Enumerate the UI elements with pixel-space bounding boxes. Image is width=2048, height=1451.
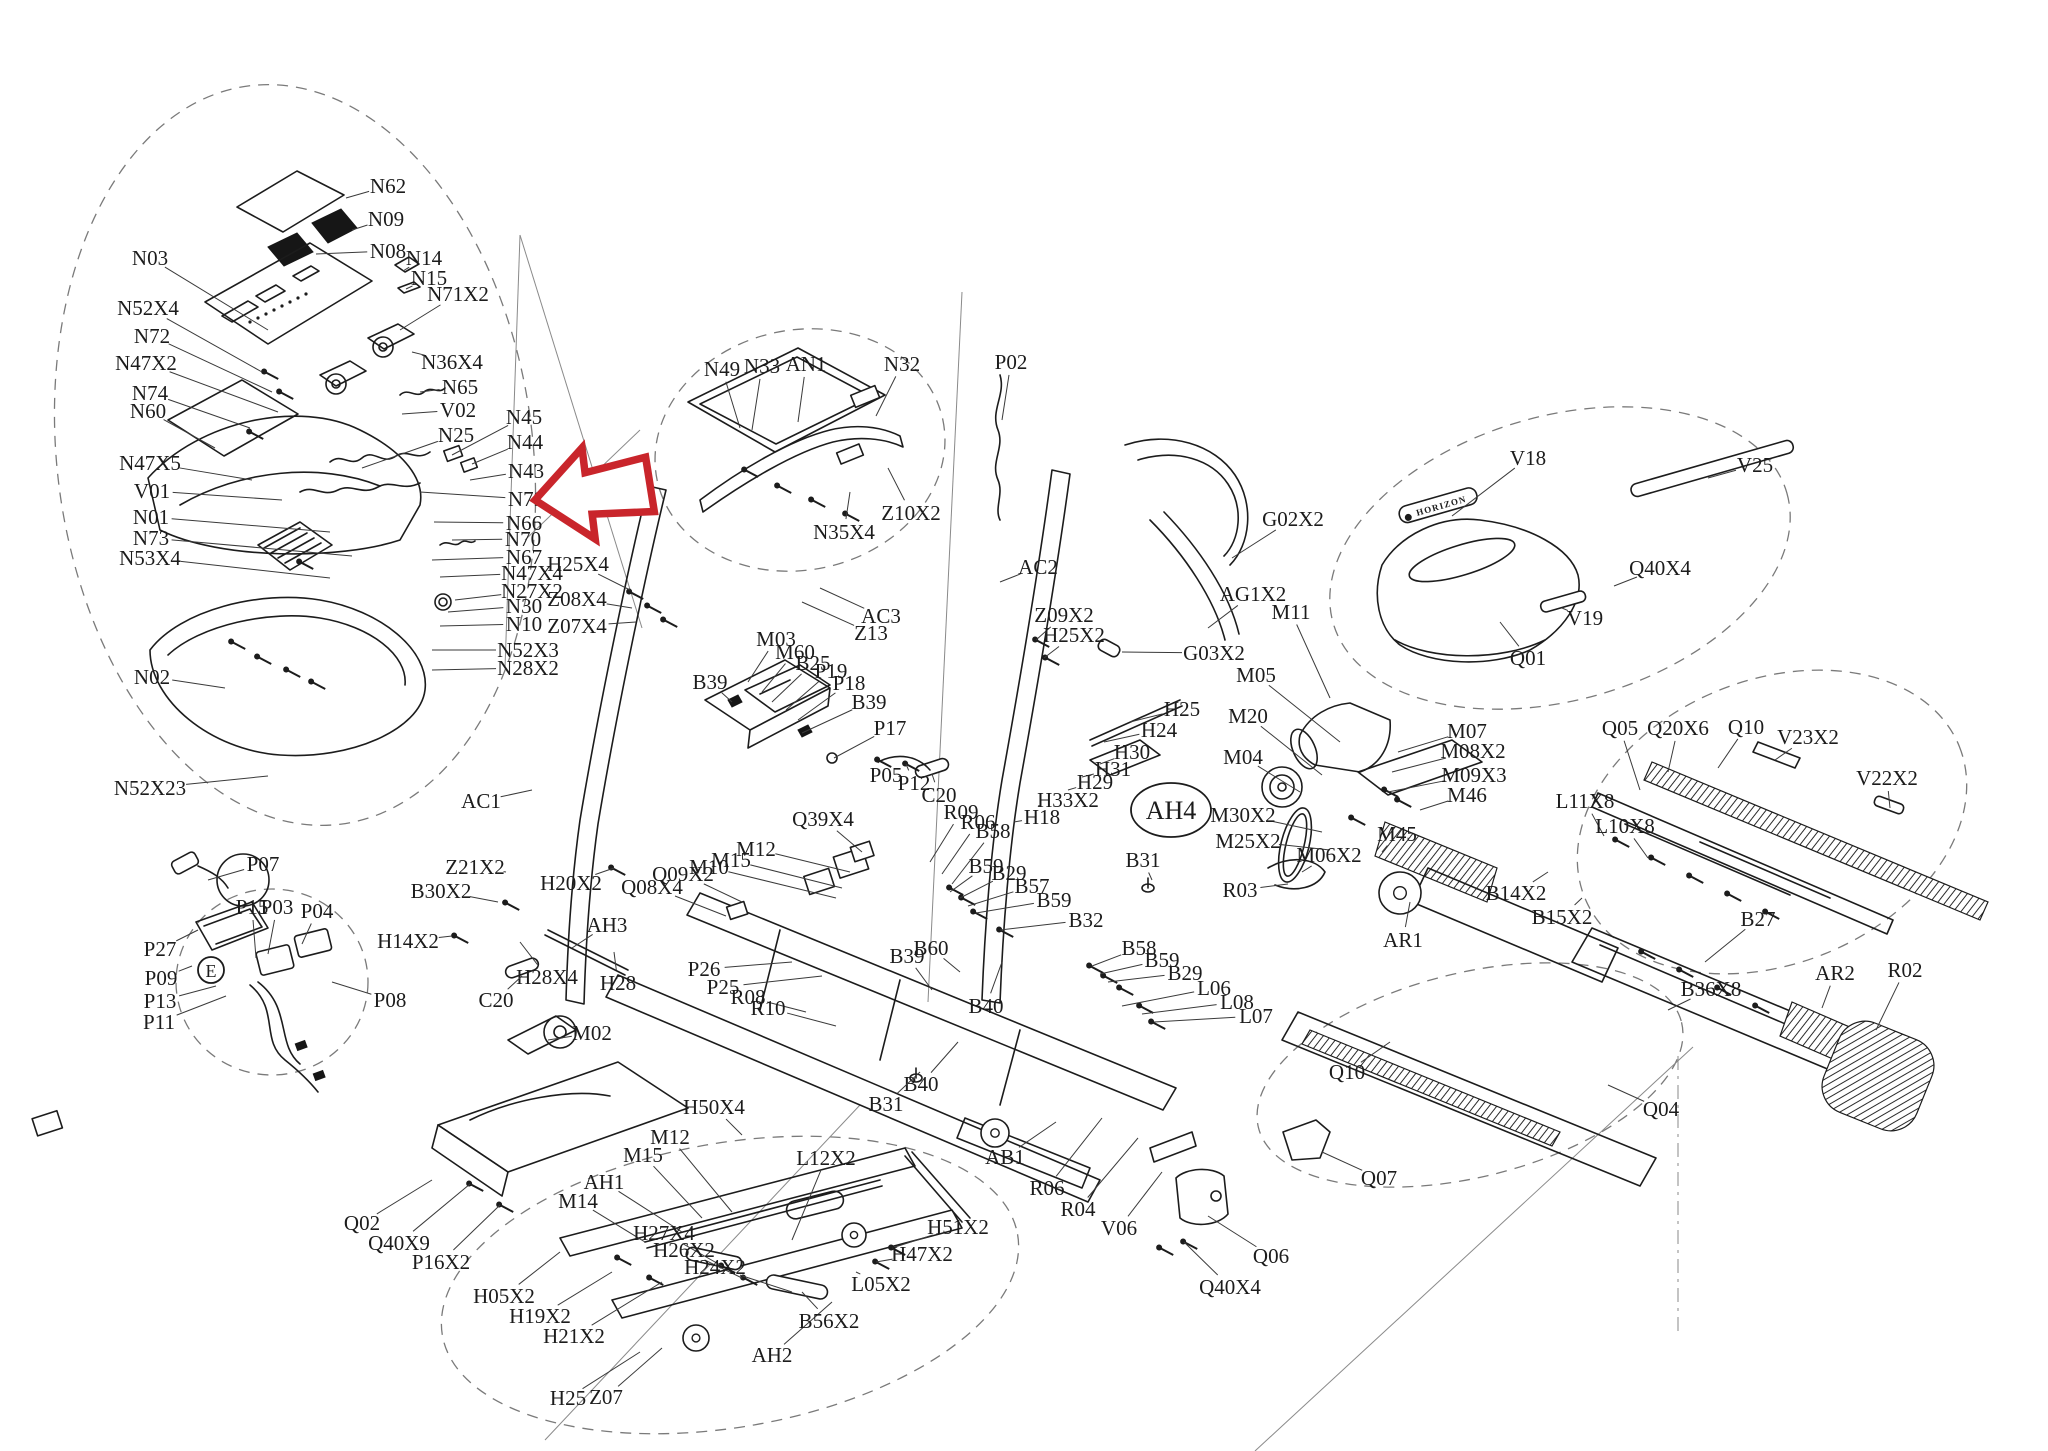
bumper-b31a	[1142, 878, 1154, 892]
connector-n45	[444, 446, 463, 462]
leader-line-N33	[752, 379, 760, 430]
part-label-AR1-120: AR1	[1383, 928, 1423, 952]
part-label-R10-150: R10	[750, 996, 785, 1020]
part-label-P16X2-156: P16X2	[412, 1250, 470, 1274]
leader-line-B40	[931, 1042, 958, 1073]
leader-line-AR2	[1822, 986, 1830, 1008]
leader-line-Q40X4	[1184, 1242, 1218, 1275]
part-label-Q40X4-104: Q40X4	[1629, 556, 1691, 580]
leader-line-Q39X4	[837, 831, 862, 852]
leader-line-H25	[583, 1352, 640, 1389]
part-label-N28X2-35: N28X2	[497, 656, 559, 680]
leader-line-R06	[1056, 1118, 1102, 1176]
part-label-B40-141: B40	[903, 1072, 938, 1096]
leader-line-Z10X2	[888, 468, 904, 500]
handlebar-group-bubble	[632, 302, 968, 597]
leader-line-N02	[172, 680, 225, 688]
leader-line-Q40X9	[413, 1184, 470, 1231]
part-label-P27-179: P27	[144, 937, 177, 961]
part-label-N35X4-42: N35X4	[813, 520, 875, 544]
part-label-N10-33: N10	[506, 612, 542, 636]
harness-wire-2	[258, 982, 300, 1064]
leader-line-N72	[169, 344, 272, 392]
screw-icon	[1647, 853, 1667, 867]
leader-line-N28X2	[432, 669, 496, 670]
leader-line-Q01	[1500, 622, 1519, 646]
part-label-M45-96: M45	[1377, 822, 1417, 846]
drive-motor	[1299, 703, 1390, 772]
part-label-R02-119: R02	[1887, 958, 1922, 982]
part-label-Q01-106: Q01	[1510, 646, 1546, 670]
part-label-H14X2-53: H14X2	[377, 929, 439, 953]
leader-line-G03X2	[1122, 652, 1182, 653]
part-label-B27-116: B27	[1740, 907, 1775, 931]
part-label-N09-1: N09	[368, 207, 404, 231]
leader-line-B39	[722, 693, 732, 702]
screw-icon	[1179, 1237, 1199, 1251]
connector-q39	[850, 841, 874, 861]
part-label-N52X4-7: N52X4	[117, 296, 179, 320]
cross-tube	[905, 1152, 970, 1222]
part-label-Q40X4-148: Q40X4	[1199, 1275, 1261, 1299]
screw-icon	[957, 893, 977, 907]
part-label-Q07-123: Q07	[1361, 1166, 1397, 1190]
part-label-M12-165: M12	[650, 1125, 690, 1149]
leader-line-Q08X4	[675, 896, 726, 916]
screw-icon	[260, 367, 280, 381]
console-bottom-housing	[150, 597, 425, 755]
circled-label-AH4: AH4	[1146, 796, 1197, 825]
leader-line-H19X2	[558, 1272, 612, 1305]
part-label-AB1-143: AB1	[985, 1145, 1025, 1169]
leader-line-H50X4	[726, 1119, 742, 1135]
part-label-V19-105: V19	[1567, 606, 1603, 630]
controller-box-m10	[804, 868, 835, 894]
screw-icon	[1723, 889, 1743, 903]
part-label-V25-103: V25	[1737, 453, 1773, 477]
part-label-G02X2-80: G02X2	[1262, 507, 1324, 531]
part-label-P17-66: P17	[874, 716, 907, 740]
part-label-H25X4-46: H25X4	[547, 552, 609, 576]
leader-line-H25X2	[1044, 646, 1059, 658]
leader-line-P18	[798, 693, 835, 720]
leader-line-N62	[346, 191, 369, 198]
bracket-q07	[1283, 1120, 1330, 1160]
part-label-C20-57: C20	[478, 988, 513, 1012]
part-label-B14X2-114: B14X2	[1486, 881, 1547, 905]
leader-line-N60	[164, 420, 215, 448]
switch-box-p03	[256, 944, 295, 976]
leader-line-P08	[332, 982, 371, 994]
leader-line-M05	[1269, 685, 1340, 742]
part-label-V23X2-110: V23X2	[1777, 725, 1839, 749]
leader-line-B27	[1705, 929, 1745, 962]
leader-line-Q04	[1608, 1085, 1644, 1101]
speaker-grille-right	[312, 209, 357, 243]
screw-icon	[807, 495, 827, 509]
part-label-P09-180: P09	[145, 966, 178, 990]
leader-line-N47X4	[440, 574, 500, 577]
part-label-H51X2-171: H51X2	[927, 1215, 989, 1239]
leader-line-P09	[179, 966, 192, 971]
part-label-B58-126: B58	[975, 819, 1010, 843]
screw-icon	[1155, 1243, 1175, 1257]
part-label-R03-101: R03	[1222, 878, 1257, 902]
wire-n25	[330, 452, 430, 462]
leader-line-AC1	[501, 790, 532, 797]
leader-line-P02	[1002, 375, 1009, 420]
part-label-V01-17: V01	[134, 479, 170, 503]
part-label-M02-58: M02	[572, 1021, 612, 1045]
leader-line-N52X4	[167, 319, 262, 372]
leader-line-R04	[1088, 1138, 1138, 1198]
part-label-B31-92: B31	[1125, 848, 1160, 872]
part-label-N52X23-22: N52X23	[114, 776, 186, 800]
screw-icon	[1685, 871, 1705, 885]
part-label-H28-56: H28	[600, 971, 636, 995]
screw-icon	[659, 615, 679, 629]
leader-line-V06	[1128, 1172, 1162, 1216]
leader-line-Q05	[1624, 741, 1640, 790]
leader-line-N43	[470, 474, 506, 480]
screw-icon	[643, 601, 663, 615]
leader-line-N52X23	[186, 776, 268, 784]
part-label-Q08X4-75: Q08X4	[621, 875, 683, 899]
leader-line-L10X8	[1634, 838, 1648, 858]
part-label-P02-40: P02	[995, 350, 1028, 374]
part-label-M06X2-95: M06X2	[1296, 843, 1361, 867]
screw-icon	[1041, 653, 1061, 667]
leader-line-B58	[1092, 955, 1121, 966]
leader-line-N53X4	[181, 561, 330, 578]
leader-line-P27	[176, 930, 198, 941]
leader-line-B59	[950, 876, 972, 892]
part-label-Z13-45: Z13	[854, 621, 888, 645]
part-label-N71X2-5: N71X2	[427, 282, 489, 306]
grip-strip-q10b	[1302, 1030, 1560, 1146]
leader-line-AC3	[820, 588, 864, 608]
motor-pulley	[1262, 767, 1302, 807]
part-label-H21X2-159: H21X2	[543, 1324, 605, 1348]
part-label-M25X2-94: M25X2	[1215, 829, 1280, 853]
leader-line-Z07	[618, 1348, 662, 1386]
leader-line-B31	[1149, 873, 1152, 880]
part-label-B56X2-174: B56X2	[799, 1309, 860, 1333]
screw-icon	[450, 931, 470, 945]
grommet-n27	[435, 594, 451, 610]
leader-line-M09X3	[1388, 781, 1445, 792]
leader-line-R09	[930, 824, 953, 862]
leader-line-B59	[1100, 964, 1142, 974]
part-label-M07-100: M07	[1447, 719, 1487, 743]
leader-line-M15	[654, 1166, 702, 1218]
leader-line-N70	[452, 539, 502, 540]
part-label-P07-175: P07	[247, 852, 280, 876]
screw-icon	[1147, 1017, 1167, 1031]
wire-n70	[440, 541, 475, 545]
part-label-B40-140: B40	[968, 994, 1003, 1018]
leader-line-B15X2	[1575, 898, 1582, 905]
leader-line-B39	[802, 710, 852, 733]
part-label-M05-82: M05	[1236, 663, 1276, 687]
part-label-R06-144: R06	[1029, 1176, 1064, 1200]
console-upper-housing	[148, 416, 421, 554]
parts-diagram-page: HORIZON	[0, 0, 2048, 1451]
leader-line-N66	[434, 522, 503, 523]
leader-line-AN1	[798, 377, 804, 422]
screw-icon	[613, 1253, 633, 1267]
part-label-P04-178: P04	[301, 899, 334, 923]
parts-diagram-canvas: HORIZON	[0, 0, 2048, 1451]
part-label-P08-183: P08	[374, 988, 407, 1012]
screw-icon	[1393, 795, 1413, 809]
shield-v06	[1150, 1132, 1196, 1162]
leader-line-N79	[420, 492, 505, 498]
part-label-B59-130: B59	[1036, 888, 1071, 912]
part-label-L12X2-170: L12X2	[796, 1146, 856, 1170]
leader-line-Q02	[377, 1180, 432, 1214]
part-label-B39-65: B39	[851, 690, 886, 714]
part-label-N45-23: N45	[506, 405, 542, 429]
leader-line-Q06	[1208, 1216, 1256, 1247]
leader-line-N67	[432, 558, 503, 560]
part-label-H25X2-77: H25X2	[1043, 623, 1105, 647]
part-label-N02-21: N02	[134, 665, 170, 689]
handlebar	[700, 427, 903, 512]
screw-icon	[501, 898, 521, 912]
part-label-H25-160: H25	[550, 1386, 586, 1410]
screw-icon	[282, 665, 302, 679]
eyelet-p17	[827, 753, 837, 763]
socket-box-p04	[294, 928, 332, 958]
leader-line-Q09X2	[704, 884, 742, 902]
part-label-H24-86: H24	[1141, 718, 1178, 742]
leader-line-Q10	[1718, 739, 1738, 768]
leader-line-H05X2	[519, 1252, 560, 1284]
part-label-P25-152: P25	[707, 975, 740, 999]
leader-line-H14X2	[439, 936, 452, 937]
part-label-B36X8-117: B36X8	[1681, 977, 1742, 1001]
leader-line-P15	[253, 920, 256, 958]
screw-icon	[275, 387, 295, 401]
clamp-n35	[837, 444, 864, 464]
part-label-B31-142: B31	[868, 1092, 903, 1116]
part-label-H20X2-52: H20X2	[540, 871, 602, 895]
wheel-icon	[842, 1223, 866, 1247]
part-label-B30X2-51: B30X2	[411, 879, 472, 903]
leader-line-M11	[1297, 625, 1330, 698]
leader-line-C20	[932, 774, 935, 782]
part-label-H24X2-168: H24X2	[684, 1255, 746, 1279]
part-label-N44-24: N44	[507, 430, 544, 454]
part-label-V18-102: V18	[1510, 446, 1546, 470]
part-label-AC1-49: AC1	[461, 789, 501, 813]
leader-line-M46	[1420, 801, 1448, 810]
cylinder-h24	[765, 1274, 829, 1301]
part-label-Q10-109: Q10	[1728, 715, 1764, 739]
part-label-L05X2-173: L05X2	[851, 1272, 911, 1296]
leader-line-P16X2	[453, 1205, 500, 1250]
part-label-H50X4-153: H50X4	[683, 1095, 745, 1119]
part-label-Q39X4-70: Q39X4	[792, 807, 854, 831]
wheel-icon	[1379, 872, 1421, 914]
lower-deck-parts	[1150, 1002, 1942, 1224]
part-label-L11X8-112: L11X8	[1556, 789, 1615, 813]
leader-line-V01	[173, 492, 282, 500]
screw-icon	[645, 1273, 665, 1287]
motor-cover-group-bubble	[1294, 356, 1826, 759]
leader-line-B29	[1108, 975, 1165, 982]
leader-line-P26	[725, 962, 792, 967]
part-label-N72-8: N72	[134, 324, 170, 348]
part-label-N36X4-12: N36X4	[421, 350, 483, 374]
part-label-N62-0: N62	[370, 174, 406, 198]
leader-line-N01	[172, 519, 330, 532]
leader-line-R06	[942, 834, 970, 874]
screw-icon	[253, 652, 273, 666]
leader-line-M03	[748, 651, 768, 682]
speaker-grille-left	[268, 233, 313, 266]
leader-line-L08	[1142, 1005, 1217, 1014]
part-label-Q10-121: Q10	[1329, 1060, 1365, 1084]
leader-line-P13	[179, 986, 216, 996]
part-label-Z08X4-47: Z08X4	[547, 587, 607, 611]
leader-line-B32	[1000, 922, 1066, 930]
part-label-M20-83: M20	[1228, 704, 1268, 728]
leader-line-Z13	[802, 602, 854, 625]
leader-line-H21X2	[592, 1282, 662, 1325]
leader-line-N27X2	[455, 595, 501, 600]
leader-line-P17	[834, 736, 874, 758]
connector-n44	[461, 458, 478, 472]
leader-line-B60	[944, 958, 960, 972]
part-label-V06-146: V06	[1101, 1216, 1137, 1240]
leader-line-M08X2	[1392, 758, 1446, 772]
bumper-b39b	[798, 725, 812, 737]
leader-line-H18	[1014, 821, 1022, 822]
power-parts	[170, 851, 332, 1092]
part-label-V02-14: V02	[440, 398, 476, 422]
screw-icon	[227, 637, 247, 651]
screw-icon	[995, 925, 1015, 939]
leader-line-N03	[165, 267, 268, 330]
roller-h50	[785, 1189, 846, 1220]
wire-p02	[996, 375, 1002, 520]
part-label-B39-139: B39	[889, 944, 924, 968]
box-m15	[32, 1111, 62, 1136]
part-label-R04-145: R04	[1060, 1197, 1096, 1221]
leader-line-Z08X4	[607, 604, 632, 608]
part-label-N32-39: N32	[884, 352, 920, 376]
part-label-Z07X4-48: Z07X4	[547, 614, 607, 638]
part-label-P03-177: P03	[261, 895, 294, 919]
circled-label-E: E	[206, 961, 217, 981]
leader-line-Q07	[1322, 1152, 1362, 1170]
screw-icon	[1115, 983, 1135, 997]
part-label-AH2-169: AH2	[752, 1343, 793, 1367]
part-label-M09X3-98: M09X3	[1441, 763, 1506, 787]
part-label-N60-11: N60	[130, 399, 166, 423]
part-label-N53X4-20: N53X4	[119, 546, 181, 570]
part-label-L07-137: L07	[1239, 1004, 1273, 1028]
handle-tube-ag1	[1150, 512, 1239, 640]
part-label-G03X2-78: G03X2	[1183, 641, 1245, 665]
leader-line-Q20X6	[1668, 741, 1675, 772]
part-label-N03-6: N03	[132, 246, 168, 270]
part-label-AR2-118: AR2	[1815, 961, 1855, 985]
leader-line-P25	[743, 976, 822, 985]
part-label-AC2-43: AC2	[1018, 555, 1058, 579]
part-label-Z21X2-50: Z21X2	[445, 855, 505, 879]
wheel-icon	[683, 1325, 709, 1351]
part-label-Z07-161: Z07	[589, 1385, 623, 1409]
part-label-AH3-55: AH3	[587, 913, 628, 937]
part-label-Q20X6-108: Q20X6	[1647, 716, 1709, 740]
leader-line-R02	[1876, 982, 1899, 1030]
part-label-Q06-147: Q06	[1253, 1244, 1289, 1268]
power-plug	[170, 851, 200, 876]
bumper-b39a	[728, 695, 742, 707]
part-label-L10X8-113: L10X8	[1595, 814, 1655, 838]
leader-line-B25	[772, 674, 802, 702]
leader-line-P11	[177, 996, 226, 1015]
part-label-M11-81: M11	[1272, 600, 1311, 624]
console-group-bubble	[13, 57, 576, 853]
part-label-H28X4-54: H28X4	[516, 965, 578, 989]
part-label-V22X2-111: V22X2	[1856, 766, 1918, 790]
leader-line-M02	[548, 1036, 572, 1040]
group-bubbles	[13, 57, 2012, 1451]
lower-deck-group-bubble	[1234, 923, 1706, 1226]
screw-icon	[307, 677, 327, 691]
part-label-N65-13: N65	[442, 375, 478, 399]
leader-line-R10	[787, 1013, 836, 1026]
leader-line-L07	[1154, 1017, 1235, 1022]
part-label-H47X2-172: H47X2	[891, 1242, 953, 1266]
part-label-B39-64: B39	[692, 670, 727, 694]
part-label-M04-84: M04	[1223, 745, 1263, 769]
screw-icon	[773, 481, 793, 495]
harness-wire-1	[250, 985, 318, 1092]
leader-line-V02	[402, 411, 437, 414]
part-label-N25-15: N25	[438, 423, 474, 447]
grip-strip-q10	[1644, 762, 1988, 920]
part-label-N43-25: N43	[508, 459, 544, 483]
leader-line-N44	[472, 449, 508, 464]
leader-line-H28	[614, 952, 616, 970]
part-label-Q05-107: Q05	[1602, 716, 1638, 740]
connector-q09	[727, 902, 748, 920]
leader-line-N71X2	[400, 305, 440, 330]
part-label-P11-182: P11	[143, 1010, 175, 1034]
leader-line-B30X2	[470, 897, 498, 902]
handle-grip-g02	[1125, 439, 1248, 565]
screw-icon	[1347, 813, 1367, 827]
leader-line-N10	[440, 624, 503, 626]
part-label-H18-91: H18	[1024, 805, 1060, 829]
part-label-AN1-38: AN1	[786, 352, 827, 376]
leader-line-AB1	[1019, 1122, 1056, 1147]
wire-n79	[300, 483, 420, 493]
part-label-Q04-122: Q04	[1643, 1097, 1680, 1121]
leader-line-N30	[448, 608, 503, 612]
part-label-AH1-163: AH1	[584, 1170, 625, 1194]
part-label-B32-131: B32	[1068, 908, 1103, 932]
fan-1	[368, 324, 414, 349]
part-label-N08-2: N08	[370, 239, 406, 263]
wheel-icon	[981, 1119, 1009, 1147]
part-label-Z10X2-41: Z10X2	[881, 501, 941, 525]
